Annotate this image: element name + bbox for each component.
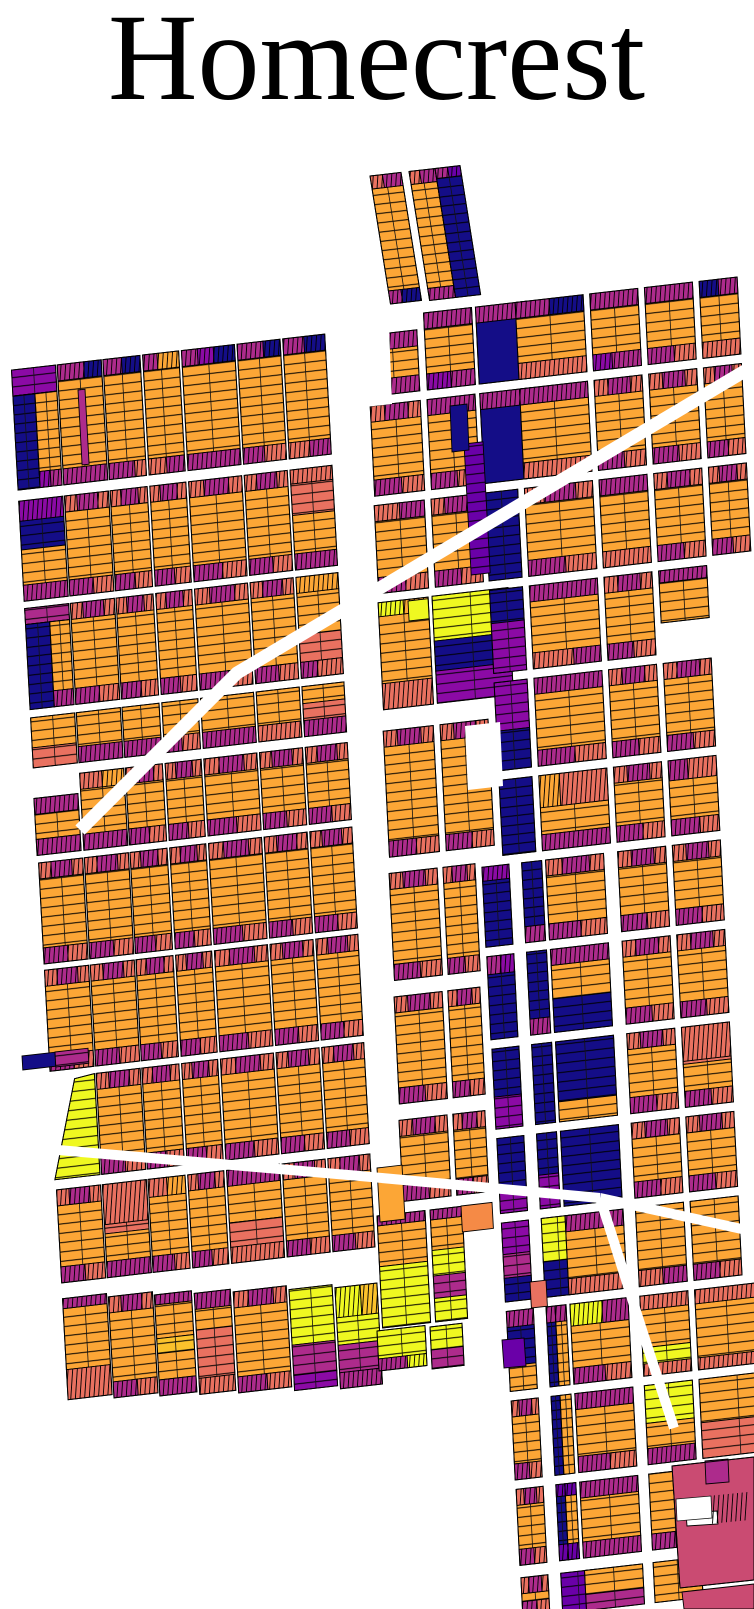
svg-text:Homecrest: Homecrest	[108, 0, 645, 126]
